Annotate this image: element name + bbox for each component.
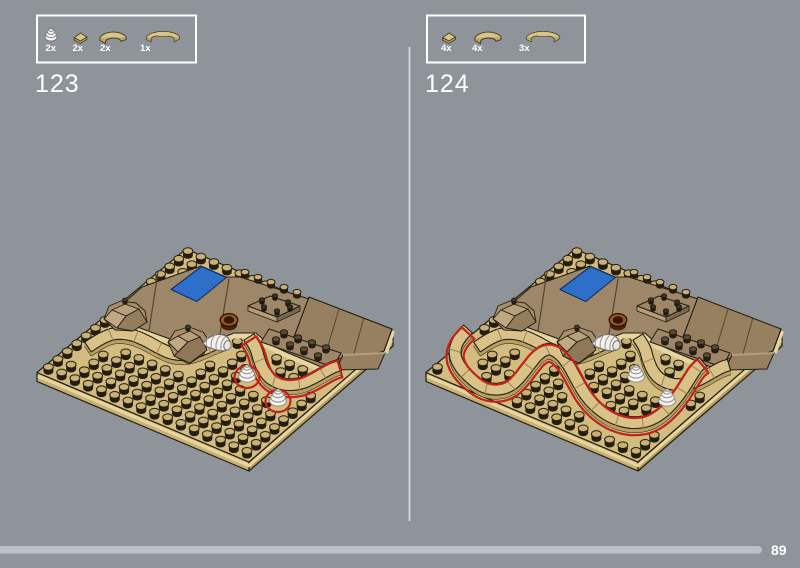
svg-text:2x: 2x [46,43,57,54]
svg-text:1x: 1x [140,43,151,54]
svg-text:4x: 4x [472,43,483,54]
svg-text:3x: 3x [519,43,530,54]
svg-text:2x: 2x [73,43,84,54]
svg-text:2x: 2x [100,43,111,54]
svg-text:4x: 4x [441,43,452,54]
svg-text:89: 89 [771,542,787,558]
